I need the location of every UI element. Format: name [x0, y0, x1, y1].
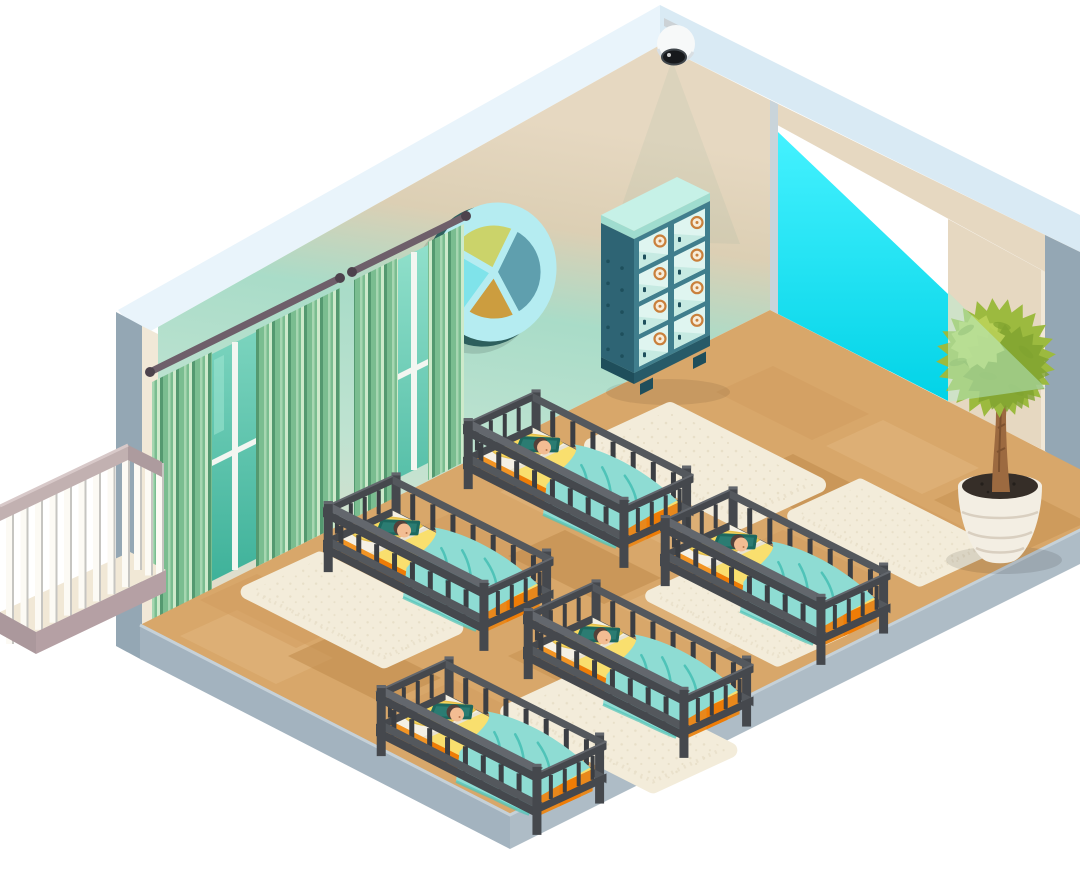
baluster-shade — [162, 463, 164, 581]
cell-badge-dot — [659, 240, 662, 243]
corner-jamb — [770, 100, 778, 314]
crib-slat — [563, 604, 567, 628]
baby-head — [597, 631, 611, 645]
cell-handle — [643, 255, 646, 260]
crib-post-back-cap — [879, 563, 888, 566]
baby-mouth — [406, 532, 408, 534]
baluster — [145, 458, 151, 576]
baluster-shade — [151, 458, 153, 576]
crib-slat — [463, 678, 468, 704]
baluster-shade — [128, 455, 130, 587]
cell-handle — [678, 335, 681, 340]
rod-finial — [347, 267, 357, 277]
crib-post-front — [619, 497, 628, 568]
baluster-shade — [56, 491, 58, 623]
cell-handle — [643, 352, 646, 357]
crib-post-front — [479, 580, 488, 651]
crib-post-front — [661, 515, 670, 586]
rod-finial — [335, 273, 345, 283]
crib-slat — [483, 688, 488, 714]
crib-post-front-cap — [324, 501, 333, 504]
crib-post-front — [679, 687, 688, 758]
cabinet-side — [601, 223, 634, 373]
baby-mouth — [743, 546, 745, 548]
rod-finial — [145, 367, 155, 377]
crib-post-front-cap — [816, 594, 825, 597]
baluster — [79, 477, 85, 609]
crib-post-front — [532, 764, 541, 835]
crib-slat — [630, 611, 635, 637]
crib-slat — [363, 497, 367, 521]
baluster-shade — [114, 462, 116, 594]
crib-slat — [577, 762, 581, 786]
rivet — [620, 332, 624, 336]
crib-slat — [416, 681, 420, 705]
crib-post-front-cap — [661, 515, 670, 518]
rivet — [620, 266, 624, 270]
crib-slat — [538, 572, 542, 596]
cell-badge-dot — [659, 272, 662, 275]
rivet — [606, 304, 610, 308]
crib-slat — [517, 407, 521, 431]
crib-slat — [696, 698, 700, 722]
cell-handle — [643, 320, 646, 325]
crib-post-back-cap — [592, 579, 601, 582]
crib-slat — [724, 685, 728, 709]
cell-badge-dot — [696, 319, 699, 322]
window-2-curtain-right — [428, 224, 464, 480]
crib-slat — [550, 411, 555, 437]
rivet — [606, 282, 610, 286]
baluster-shade — [41, 498, 43, 630]
baluster-shade — [85, 477, 87, 609]
rod-finial — [461, 211, 471, 221]
crib-slat — [847, 599, 851, 623]
crib-post-front-cap — [619, 497, 628, 500]
crib-post-back-cap — [595, 733, 604, 736]
crib-slat — [636, 508, 640, 532]
crib-post-front-cap — [679, 687, 688, 690]
crib-slat — [650, 502, 654, 526]
baluster — [93, 469, 99, 601]
crib-post-back-cap — [445, 656, 454, 659]
crib-slat — [430, 504, 435, 530]
baby-head — [450, 708, 464, 722]
baluster — [122, 455, 128, 587]
crib-slat — [570, 421, 575, 447]
cell-badge-dot — [696, 286, 699, 289]
crib-slat — [377, 490, 381, 514]
rivet — [606, 348, 610, 352]
crib-slat — [410, 494, 415, 520]
baluster — [108, 462, 114, 594]
crib-slat — [510, 585, 514, 609]
crib-slat — [610, 601, 615, 627]
cell-badge-dot — [696, 254, 699, 257]
crib-post-front — [524, 608, 533, 679]
cell-handle — [643, 287, 646, 292]
crib-post-front-cap — [377, 685, 386, 688]
cell-handle — [678, 237, 681, 242]
crib-post-front-cap — [464, 418, 473, 421]
crib-slat — [714, 504, 718, 528]
baby-head — [397, 524, 411, 538]
baluster — [35, 498, 41, 630]
crib-post-back-cap — [682, 466, 691, 469]
crib-post-back-cap — [742, 656, 751, 659]
crib-slat — [591, 756, 595, 780]
rivet — [620, 288, 624, 292]
crib-slat — [833, 605, 837, 629]
crib-post-back-cap — [729, 486, 738, 489]
window-1-mullion-v — [232, 342, 238, 570]
crib-slat — [747, 508, 752, 534]
baby-mouth — [546, 449, 548, 451]
baluster-shade — [99, 469, 101, 601]
cell-handle — [678, 302, 681, 307]
crib-slat — [767, 518, 772, 544]
rivet — [606, 326, 610, 330]
crib-post-front-cap — [479, 580, 488, 583]
crib-slat — [503, 414, 507, 438]
crib-post-front-cap — [524, 608, 533, 611]
crib-slat — [430, 674, 434, 698]
cell-badge-dot — [696, 221, 699, 224]
crib-post-front — [377, 685, 386, 756]
crib-slat — [563, 769, 567, 793]
crib-slat — [549, 775, 553, 799]
crib-post-front — [324, 501, 333, 572]
crib-slat — [678, 489, 682, 513]
cabinet-shadow — [606, 379, 730, 405]
nursery-scene — [0, 0, 1080, 874]
crib-post-back-cap — [542, 549, 551, 552]
crib-slat — [710, 692, 714, 716]
baluster-shade — [70, 484, 72, 616]
crib-post-front-cap — [532, 764, 541, 767]
baluster-shade — [140, 452, 142, 570]
rivet — [620, 310, 624, 314]
crib-post-back-cap — [392, 472, 401, 475]
crib-slat — [875, 586, 879, 610]
crib-slat — [496, 591, 500, 615]
baby-mouth — [459, 716, 461, 718]
crib-post-back-cap — [532, 389, 541, 392]
crib-post-front — [816, 594, 825, 665]
baluster — [134, 452, 140, 570]
cell-badge-dot — [659, 337, 662, 340]
crib-slat — [861, 592, 865, 616]
crib-post-front — [464, 418, 473, 489]
baluster — [21, 505, 27, 637]
baby-head — [537, 441, 551, 455]
rivet — [606, 260, 610, 264]
crib-slat — [738, 679, 742, 703]
crib-slat — [524, 578, 528, 602]
camera-lens-glint — [667, 53, 671, 57]
crib-slat — [700, 511, 704, 535]
baluster — [50, 491, 56, 623]
cell-handle — [678, 270, 681, 275]
window-1-reflection — [214, 355, 224, 435]
baluster-shade — [27, 505, 29, 637]
nursery-illustration — [0, 0, 1080, 874]
baluster — [64, 484, 70, 616]
baby-head — [734, 538, 748, 552]
baluster — [156, 463, 162, 581]
crib-slat — [577, 597, 581, 621]
cell-badge-dot — [659, 305, 662, 308]
baby-mouth — [606, 639, 608, 641]
window-2-mullion-v — [411, 252, 417, 470]
rivet — [620, 354, 624, 358]
